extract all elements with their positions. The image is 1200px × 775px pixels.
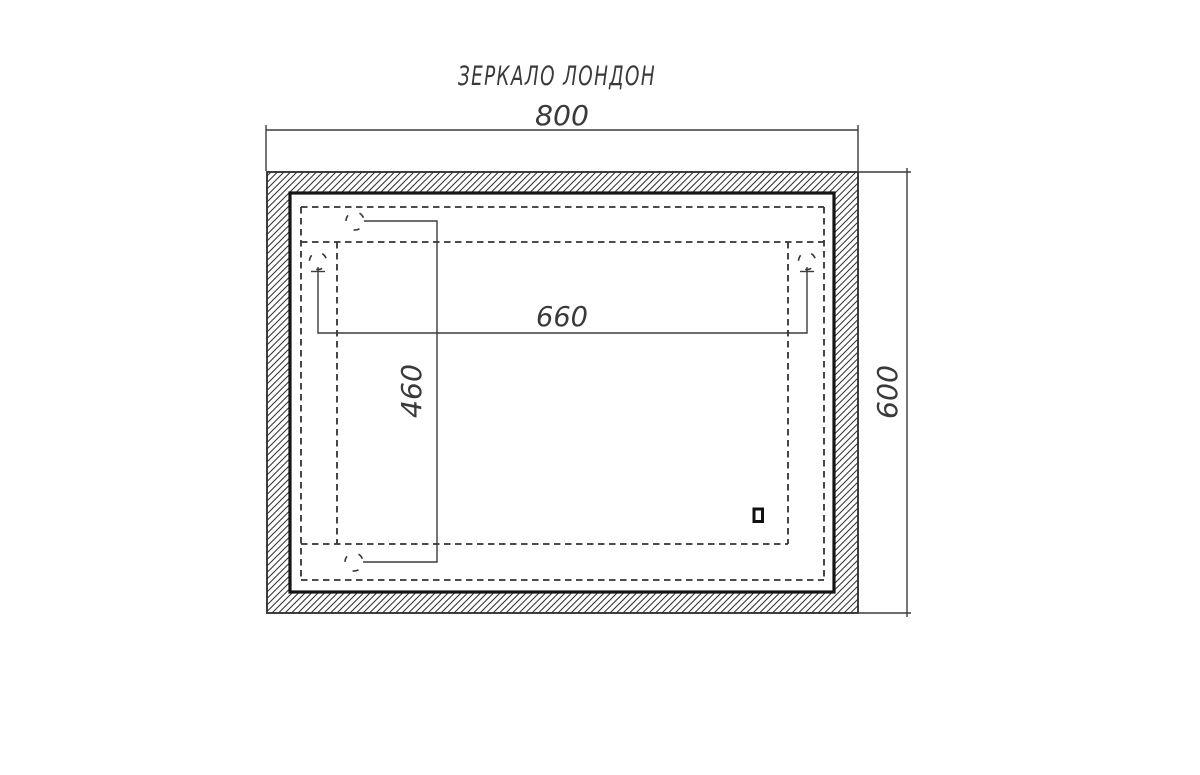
dimension-600-label: 600	[871, 365, 904, 419]
hatch-line	[857, 612, 858, 613]
technical-drawing-mirror: ЗЕРКАЛО ЛОНДОН 800	[0, 0, 1200, 775]
mirror-inner-edge	[290, 193, 834, 592]
touch-sensor-button	[754, 509, 763, 522]
dimension-660-label: 660	[536, 300, 588, 333]
dimension-800-label: 800	[535, 99, 589, 132]
drawing-page: ЗЕРКАЛО ЛОНДОН 800	[0, 0, 1200, 775]
dimension-460-label: 460	[395, 364, 428, 418]
drawing-title: ЗЕРКАЛО ЛОНДОН	[458, 61, 656, 92]
